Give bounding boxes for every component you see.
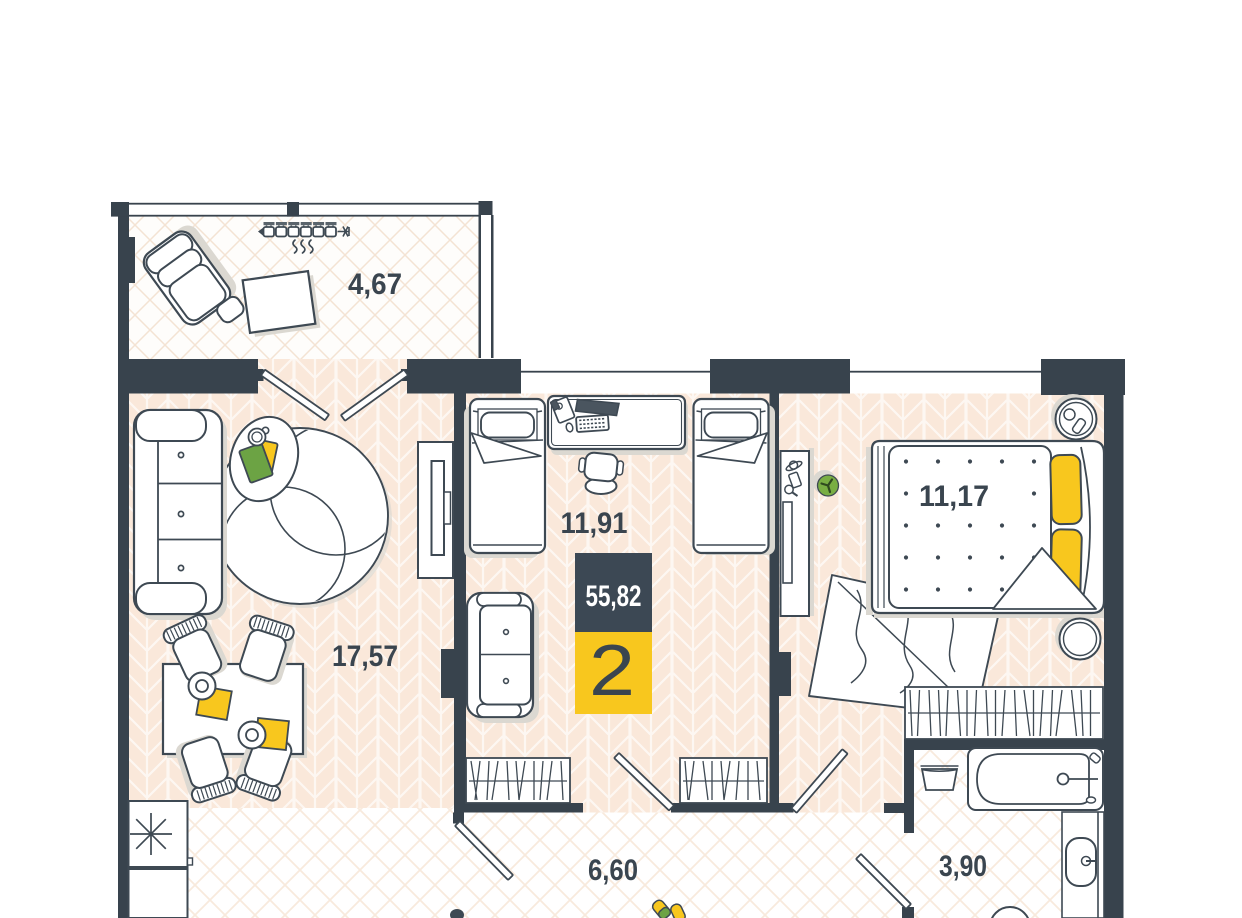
svg-text:11,91: 11,91	[561, 507, 628, 540]
svg-text:4,67: 4,67	[348, 268, 402, 301]
svg-text:2: 2	[589, 631, 635, 711]
svg-text:6,60: 6,60	[588, 854, 638, 887]
svg-text:3,90: 3,90	[939, 850, 987, 883]
svg-text:55,82: 55,82	[586, 580, 642, 613]
svg-text:11,17: 11,17	[919, 480, 989, 513]
svg-text:17,57: 17,57	[332, 640, 398, 673]
